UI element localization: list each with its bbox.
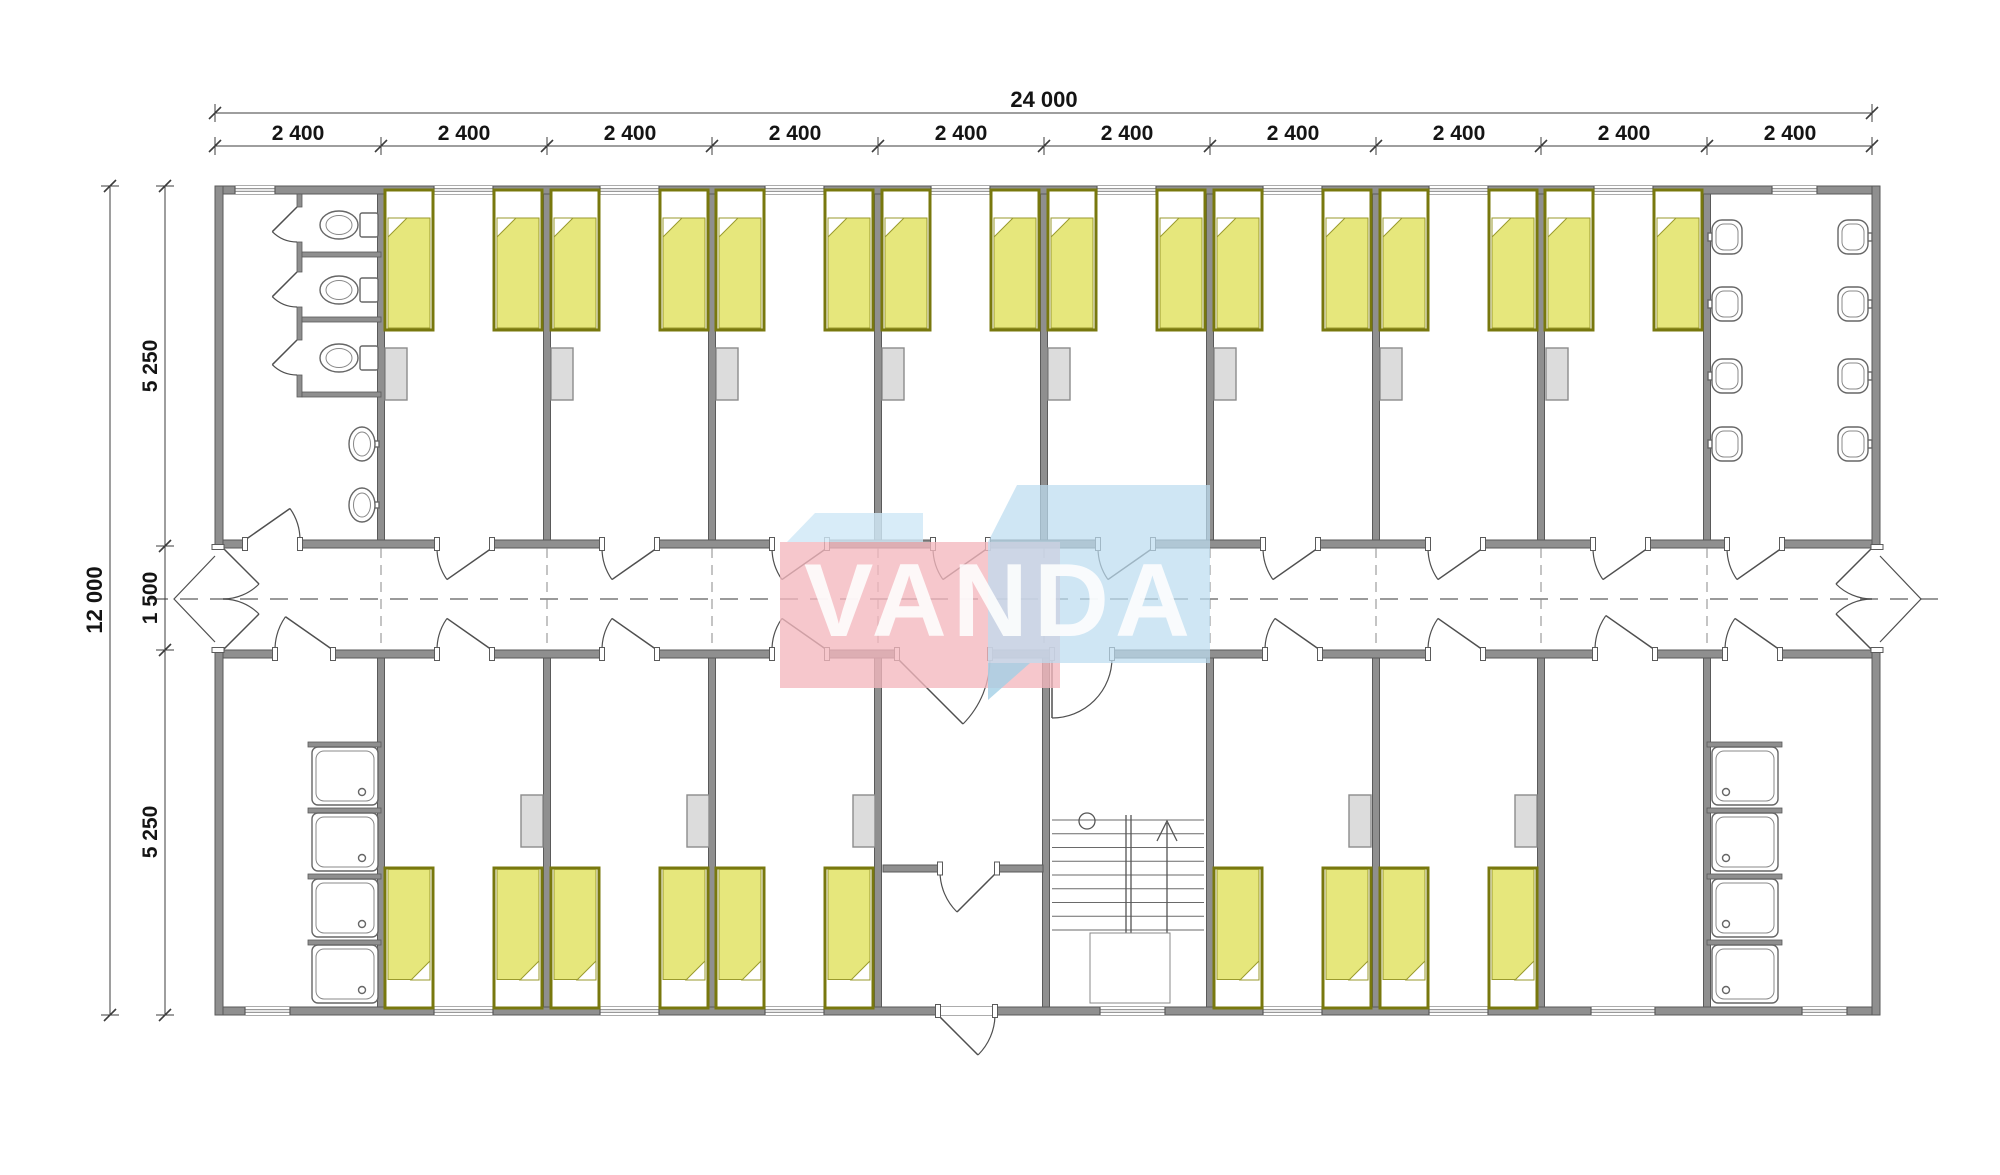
- door-jamb: [655, 648, 660, 661]
- washbasin: [1708, 287, 1742, 321]
- bed: [385, 868, 433, 1008]
- bed: [1157, 190, 1205, 330]
- door-jamb: [655, 538, 660, 551]
- wall-segment: [544, 658, 551, 1007]
- bed-blanket: [1548, 218, 1590, 328]
- window: [434, 1007, 493, 1015]
- wall-segment: [492, 650, 602, 658]
- door-swing-arc: [940, 872, 957, 912]
- wall-segment: [709, 194, 716, 540]
- door-jamb: [1591, 538, 1596, 551]
- washbasin: [349, 427, 379, 461]
- door: [437, 548, 492, 580]
- door-jamb: [435, 538, 440, 551]
- drain: [359, 789, 366, 796]
- door-jamb: [770, 648, 775, 661]
- wall-segment: [1655, 650, 1725, 658]
- dim-left-segment: 5 250: [139, 340, 162, 393]
- door-jamb: [243, 538, 248, 551]
- drain: [1723, 855, 1730, 862]
- door-jamb: [938, 862, 943, 875]
- bed: [882, 190, 930, 330]
- partition-wall: [308, 940, 381, 945]
- dim-top-segment: 2 400: [1267, 122, 1320, 145]
- door-leaf: [447, 618, 492, 650]
- wall-segment: [215, 650, 223, 1015]
- bed: [494, 868, 542, 1008]
- door-jamb: [1723, 648, 1728, 661]
- partition-wall: [1707, 742, 1782, 747]
- wall-segment: [1782, 540, 1872, 548]
- bed: [825, 868, 873, 1008]
- toilet: [320, 276, 378, 304]
- tray: [1712, 879, 1778, 937]
- wall-segment: [333, 650, 437, 658]
- washbasin: [1838, 220, 1872, 254]
- tray: [312, 945, 378, 1003]
- partition-wall: [302, 317, 381, 322]
- door-swing-arc: [602, 618, 612, 650]
- wall-segment: [1872, 186, 1880, 548]
- wardrobe: [853, 795, 875, 847]
- dim-top-segment: 2 400: [438, 122, 491, 145]
- door-swing-arc: [1052, 658, 1112, 718]
- partition-wall: [297, 375, 302, 397]
- bed: [825, 190, 873, 330]
- window: [600, 186, 659, 194]
- door-jamb: [1481, 538, 1486, 551]
- window: [1591, 1007, 1655, 1015]
- wardrobe: [1546, 348, 1568, 400]
- door: [1263, 548, 1318, 580]
- door-jamb: [1263, 648, 1268, 661]
- bed: [1489, 868, 1537, 1008]
- window: [245, 1007, 290, 1015]
- watermark-text: VANDA: [804, 543, 1196, 659]
- wall-segment: [997, 865, 1043, 872]
- washbasin: [1708, 220, 1742, 254]
- wall-segment: [223, 540, 245, 548]
- staircase: [1052, 813, 1204, 1003]
- wardrobe: [521, 795, 543, 847]
- door-leaf: [1275, 618, 1320, 650]
- door-jamb: [1426, 538, 1431, 551]
- partition-wall: [297, 242, 302, 272]
- door-jamb: [995, 862, 1000, 875]
- bed: [1214, 868, 1262, 1008]
- door-leaf: [612, 618, 657, 650]
- bed-blanket: [1383, 870, 1425, 980]
- drain: [1723, 789, 1730, 796]
- door-leaf: [938, 1015, 978, 1055]
- bed-blanket: [1160, 218, 1202, 328]
- door: [940, 872, 997, 912]
- wall-segment: [1648, 540, 1727, 548]
- wall-segment: [883, 865, 940, 872]
- dim-top-segment: 2 400: [935, 122, 988, 145]
- partition-wall: [297, 307, 302, 340]
- window: [1097, 186, 1156, 194]
- wardrobe: [882, 348, 904, 400]
- bed: [1323, 868, 1371, 1008]
- tray: [1712, 945, 1778, 1003]
- wardrobe: [385, 348, 407, 400]
- door-jamb: [273, 648, 278, 661]
- tray: [1712, 747, 1778, 805]
- bed: [551, 868, 599, 1008]
- washbasin: [349, 488, 379, 522]
- wall-segment: [544, 194, 551, 540]
- bed: [1380, 190, 1428, 330]
- drain: [359, 921, 366, 928]
- door-jamb: [1871, 648, 1883, 653]
- door-leaf: [223, 548, 259, 584]
- door-swing-arc: [1263, 548, 1273, 580]
- bed: [991, 190, 1039, 330]
- wall-segment: [1483, 540, 1593, 548]
- door-swing-arc: [1595, 616, 1606, 650]
- wall-segment: [657, 540, 772, 548]
- door: [1595, 616, 1655, 650]
- washbasin: [1838, 287, 1872, 321]
- shower-tray: [1712, 813, 1778, 871]
- bed: [1214, 190, 1262, 330]
- bed: [1545, 190, 1593, 330]
- bed: [660, 190, 708, 330]
- bed-blanket: [1217, 218, 1259, 328]
- door-jamb: [1481, 648, 1486, 661]
- partition-wall: [308, 874, 381, 879]
- bed-blanket: [388, 870, 430, 980]
- partition-wall: [302, 392, 381, 397]
- door: [1727, 548, 1782, 580]
- wall-segment: [1538, 194, 1545, 540]
- wall-segment: [1043, 658, 1050, 1007]
- door: [1052, 658, 1112, 718]
- dim-top-segment: 2 400: [272, 122, 325, 145]
- partition-wall: [1707, 874, 1782, 879]
- door: [1593, 548, 1648, 580]
- door-jamb: [1780, 538, 1785, 551]
- door-leaf: [223, 614, 259, 650]
- wall-segment: [223, 650, 275, 658]
- drain: [1723, 921, 1730, 928]
- bed-blanket: [663, 870, 705, 980]
- stall-door: [272, 272, 297, 307]
- partition-wall: [297, 194, 302, 207]
- wall-segment: [1483, 650, 1595, 658]
- door-leaf: [1836, 614, 1872, 650]
- bed-blanket: [719, 870, 761, 980]
- door: [437, 618, 492, 650]
- bed-blanket: [1657, 218, 1699, 328]
- wardrobe: [687, 795, 709, 847]
- bed: [1323, 190, 1371, 330]
- washbasin: [1838, 427, 1872, 461]
- bed-blanket: [663, 218, 705, 328]
- partition-wall: [1707, 808, 1782, 813]
- drain: [359, 987, 366, 994]
- bed-blanket: [885, 218, 927, 328]
- dim-left-total: 12 000: [82, 566, 107, 633]
- door-swing-arc: [1428, 548, 1438, 580]
- door-jamb: [490, 648, 495, 661]
- wall-segment: [1704, 658, 1711, 1007]
- door-swing-arc: [223, 599, 259, 614]
- door-leaf: [1836, 548, 1872, 584]
- window: [1594, 186, 1653, 194]
- door: [245, 509, 300, 541]
- window: [765, 186, 824, 194]
- door: [1428, 548, 1483, 580]
- door-leaf: [1438, 618, 1483, 650]
- wardrobe: [1214, 348, 1236, 400]
- window: [1263, 186, 1322, 194]
- door-jamb: [1316, 538, 1321, 551]
- wall-segment: [1373, 194, 1380, 540]
- corridor-end-door: [1836, 545, 1921, 653]
- window: [1100, 1007, 1165, 1015]
- door-leaf: [272, 207, 297, 232]
- door-jamb: [435, 648, 440, 661]
- wall-segment: [1318, 540, 1428, 548]
- door-jamb: [1318, 648, 1323, 661]
- bed-blanket: [1326, 870, 1368, 980]
- door-jamb: [1646, 538, 1651, 551]
- wall-segment: [1872, 650, 1880, 1015]
- bed-blanket: [828, 870, 870, 980]
- floor-plan-drawing: VANDA 24 000 2 400 2 400 2 400 2 400 2 4…: [0, 0, 2000, 1175]
- door-swing-arc: [437, 618, 447, 650]
- wall-segment: [300, 540, 437, 548]
- watermark-bevel-shape: [787, 513, 923, 542]
- dim-top-segment: 2 400: [769, 122, 822, 145]
- toilet-cistern: [360, 278, 378, 302]
- door-leaf: [245, 509, 290, 541]
- wall-segment: [1320, 650, 1428, 658]
- door-jamb: [1426, 648, 1431, 661]
- dim-top-segment: 2 400: [1101, 122, 1154, 145]
- bed-blanket: [828, 218, 870, 328]
- door-jamb: [1593, 648, 1598, 661]
- door-jamb: [1778, 648, 1783, 661]
- bed: [716, 190, 764, 330]
- door-swing-arc: [1428, 618, 1438, 650]
- window: [931, 186, 990, 194]
- tray: [1712, 813, 1778, 871]
- bed-blanket: [554, 218, 596, 328]
- door-swing-arc: [1836, 599, 1872, 614]
- dim-top-total: 24 000: [1010, 87, 1077, 112]
- wall-segment: [657, 650, 772, 658]
- bed: [1654, 190, 1702, 330]
- bed: [1048, 190, 1096, 330]
- dim-left-segment: 1 500: [139, 572, 162, 625]
- shower-tray: [1712, 879, 1778, 937]
- toilet: [320, 344, 378, 372]
- bed-blanket: [1326, 218, 1368, 328]
- partition-wall: [1707, 940, 1782, 945]
- door: [1265, 618, 1320, 650]
- stair-post: [1079, 813, 1095, 829]
- bed: [1489, 190, 1537, 330]
- door-leaf: [447, 548, 492, 580]
- watermark-logo: VANDA: [780, 485, 1210, 700]
- door-swing-arc: [290, 509, 300, 541]
- dim-top-segment: 2 400: [604, 122, 657, 145]
- wardrobe: [1048, 348, 1070, 400]
- shower-tray: [312, 813, 378, 871]
- wardrobe: [716, 348, 738, 400]
- door-jamb: [600, 648, 605, 661]
- entrance-opening: [938, 1007, 995, 1015]
- bed: [660, 868, 708, 1008]
- door-jamb: [1261, 538, 1266, 551]
- bed-blanket: [554, 870, 596, 980]
- door-jamb: [600, 538, 605, 551]
- wardrobe: [1349, 795, 1371, 847]
- door-swing-arc: [275, 617, 285, 650]
- bed-blanket: [497, 870, 539, 980]
- door-leaf: [1438, 548, 1483, 580]
- door-swing-arc: [1593, 548, 1603, 580]
- tray: [312, 879, 378, 937]
- wall-segment: [1373, 658, 1380, 1007]
- bed: [494, 190, 542, 330]
- door-jamb: [1653, 648, 1658, 661]
- door-swing-arc: [1727, 548, 1737, 580]
- bed-blanket: [388, 218, 430, 328]
- partition-wall: [308, 742, 381, 747]
- door-swing-arc: [1836, 584, 1872, 599]
- door-swing-arc: [1725, 618, 1735, 650]
- door-leaf: [612, 548, 657, 580]
- wall-segment: [1538, 658, 1545, 1007]
- door: [275, 617, 333, 650]
- door-swing-arc: [272, 297, 297, 307]
- toilet: [320, 211, 378, 239]
- shower-tray: [312, 879, 378, 937]
- bed: [551, 190, 599, 330]
- shower-tray: [312, 945, 378, 1003]
- stall-door: [272, 207, 297, 242]
- door-jamb: [936, 1005, 941, 1018]
- door-swing-arc: [272, 232, 297, 242]
- door-jamb: [212, 648, 224, 653]
- dim-top-segment: 2 400: [1764, 122, 1817, 145]
- bed-blanket: [1492, 218, 1534, 328]
- door: [602, 548, 657, 580]
- stall-door: [272, 340, 297, 375]
- bed: [1380, 868, 1428, 1008]
- wall-segment: [875, 194, 882, 540]
- bed-blanket: [1051, 218, 1093, 328]
- door-jamb: [331, 648, 336, 661]
- toilet-cistern: [360, 213, 378, 237]
- drain: [359, 855, 366, 862]
- dim-top-segment: 2 400: [1598, 122, 1651, 145]
- door-jamb: [993, 1005, 998, 1018]
- shower-tray: [1712, 945, 1778, 1003]
- door-swing-arc: [1265, 618, 1275, 650]
- door: [1428, 618, 1483, 650]
- wall-segment: [1780, 650, 1872, 658]
- entrance-door: [938, 1007, 995, 1055]
- wardrobe: [1515, 795, 1537, 847]
- bed-blanket: [994, 218, 1036, 328]
- bed-blanket: [1492, 870, 1534, 980]
- door-leaf: [1737, 548, 1782, 580]
- partition-wall: [302, 252, 381, 257]
- wall-segment: [215, 186, 223, 548]
- window: [1429, 186, 1488, 194]
- door-leaf: [1603, 548, 1648, 580]
- window: [235, 186, 275, 194]
- door: [1725, 618, 1780, 650]
- bed-blanket: [719, 218, 761, 328]
- shower-tray: [312, 747, 378, 805]
- door-swing-arc: [602, 548, 612, 580]
- partition-wall: [308, 808, 381, 813]
- door-swing-arc: [978, 1015, 995, 1055]
- wall-segment: [492, 540, 602, 548]
- window: [1263, 1007, 1322, 1015]
- washbasin: [1708, 359, 1742, 393]
- window: [1802, 1007, 1847, 1015]
- door-jamb: [1725, 538, 1730, 551]
- window: [765, 1007, 824, 1015]
- door-jamb: [298, 538, 303, 551]
- window: [434, 186, 493, 194]
- bed: [716, 868, 764, 1008]
- door-jamb: [1871, 545, 1883, 550]
- shower-tray: [1712, 747, 1778, 805]
- door-jamb: [490, 538, 495, 551]
- door-leaf: [272, 340, 297, 365]
- door-leaf: [1735, 618, 1780, 650]
- bed-blanket: [1217, 870, 1259, 980]
- stair-landing: [1090, 933, 1170, 1003]
- drain: [1723, 987, 1730, 994]
- dim-top-segment: 2 400: [1433, 122, 1486, 145]
- toilet-cistern: [360, 346, 378, 370]
- door-swing-arc: [272, 365, 297, 375]
- door-jamb: [212, 545, 224, 550]
- tray: [312, 747, 378, 805]
- washbasin: [1708, 427, 1742, 461]
- door-swing-arc: [223, 584, 259, 599]
- door-leaf: [1606, 616, 1655, 650]
- door-jamb: [770, 538, 775, 551]
- wall-segment: [1704, 194, 1711, 540]
- tray: [312, 813, 378, 871]
- wardrobe: [1380, 348, 1402, 400]
- door-leaf: [285, 617, 333, 650]
- bed-blanket: [1383, 218, 1425, 328]
- window: [600, 1007, 659, 1015]
- wardrobe: [551, 348, 573, 400]
- window: [1772, 186, 1817, 194]
- floor-plan-page: VANDA 24 000 2 400 2 400 2 400 2 400 2 4…: [0, 0, 2000, 1175]
- window: [1429, 1007, 1488, 1015]
- wall-segment: [1207, 658, 1214, 1007]
- bed: [385, 190, 433, 330]
- door-leaf: [957, 872, 997, 912]
- washbasin: [1838, 359, 1872, 393]
- door-leaf: [1273, 548, 1318, 580]
- door: [602, 618, 657, 650]
- dim-left-segment: 5 250: [139, 806, 162, 859]
